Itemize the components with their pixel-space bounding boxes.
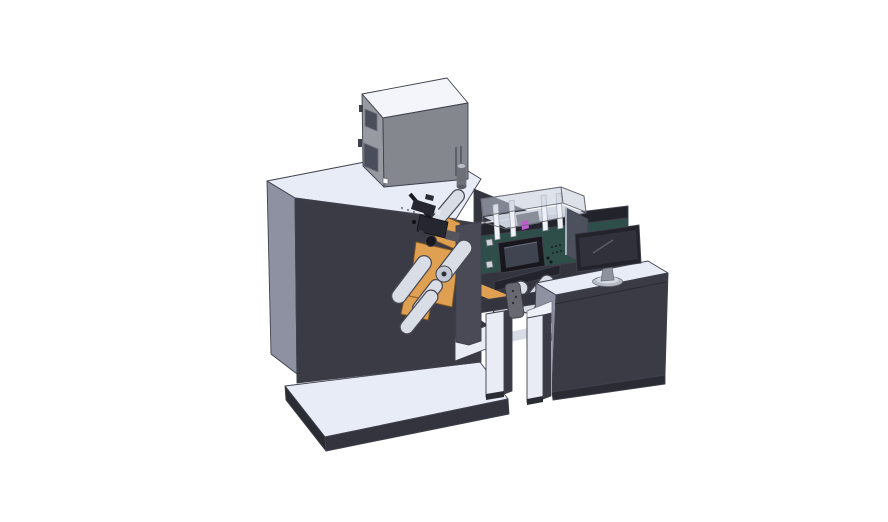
machine-render-svg bbox=[0, 0, 888, 522]
hinge-plate bbox=[486, 239, 493, 246]
monitor-stand bbox=[601, 267, 614, 281]
screw-dot bbox=[413, 211, 415, 213]
head-sensor-window bbox=[435, 209, 441, 215]
turret-cover-plate bbox=[456, 222, 481, 345]
corner-label-plate bbox=[383, 178, 388, 184]
cad-render-canvas bbox=[0, 0, 888, 522]
hinge-nub bbox=[358, 139, 362, 147]
hinge-nub bbox=[359, 105, 363, 112]
screw-dot bbox=[407, 209, 409, 211]
hmi-button bbox=[550, 261, 553, 264]
roller-end-hub bbox=[442, 272, 447, 277]
hmi-button bbox=[547, 257, 550, 260]
exhaust-cylinder bbox=[457, 164, 466, 190]
dryer-box bbox=[358, 78, 468, 187]
screw-dot bbox=[401, 207, 403, 209]
hinge-plate bbox=[486, 261, 493, 268]
